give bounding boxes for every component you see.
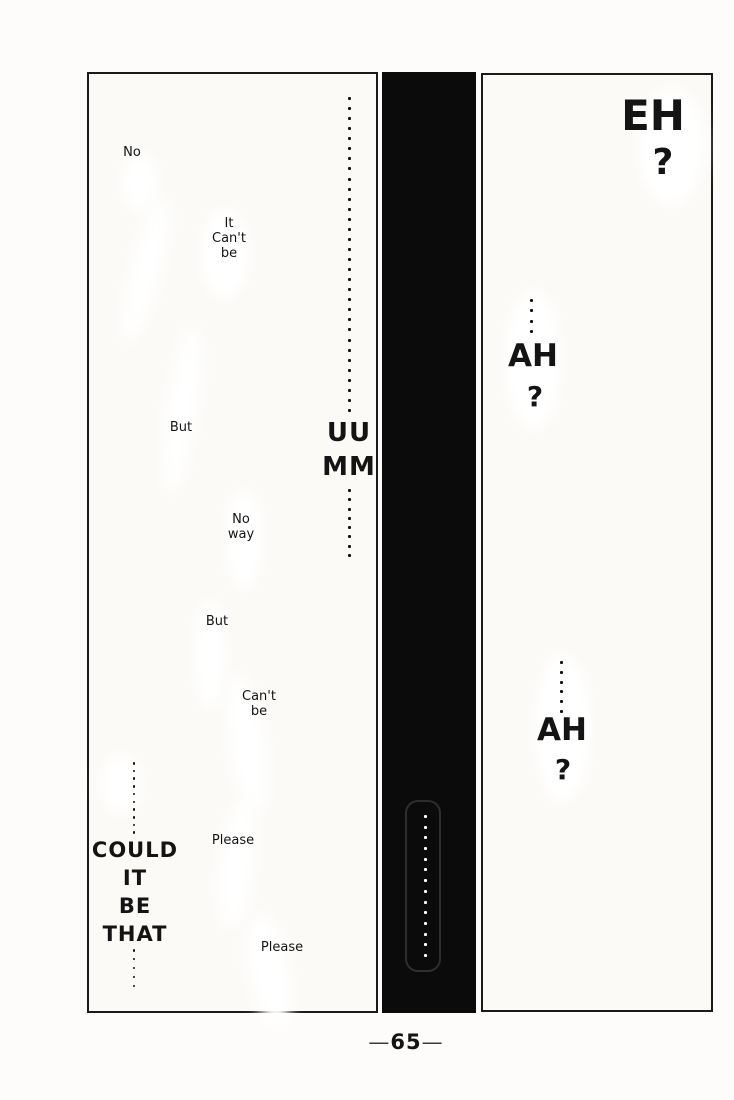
dialogue-no: No — [107, 146, 157, 161]
black-gutter-bar — [382, 72, 476, 1013]
dialogue-no-text: No — [123, 145, 141, 160]
dialogue-but-1: But — [151, 421, 211, 436]
ellipsis-dots-below-that — [132, 949, 136, 987]
sfx-ah-2: AH — [527, 715, 597, 746]
white-halo — [155, 323, 208, 496]
sfx-ah-2-question-mark: ? — [541, 756, 585, 784]
dialogue-but-2: But — [187, 615, 247, 630]
white-halo — [239, 911, 298, 1031]
page-number: —65— — [336, 1030, 476, 1054]
ellipsis-dots-top-column — [347, 97, 351, 412]
sfx-ah-1-question-mark: ? — [513, 383, 557, 411]
white-halo — [212, 797, 261, 930]
manga-page: { "left_panel": { "no": "No", "it_cant_b… — [0, 0, 734, 1100]
sfx-eh: EH — [613, 95, 693, 137]
dialogue-please-1: Please — [203, 834, 263, 849]
ellipsis-dots-above-ah-1 — [529, 299, 533, 333]
ellipsis-dots-above-ah-2 — [559, 661, 563, 713]
ellipsis-dots-above-could — [132, 762, 136, 834]
page-number-dash-right: — — [422, 1030, 444, 1054]
page-number-value: 65 — [390, 1030, 421, 1054]
dialogue-cant-be: Can't be — [229, 690, 289, 720]
ellipsis-dots-gutter-bubble — [423, 815, 427, 957]
white-halo — [122, 152, 158, 212]
dialogue-no-way: No way — [211, 513, 271, 543]
sfx-uumm: UU MM — [317, 416, 381, 484]
left-panel: No It Can't be But UU MM No way But Can'… — [87, 72, 378, 1013]
sfx-could-it-be-that: COULD IT BE THAT — [89, 836, 181, 948]
sfx-eh-question-mark: ? — [643, 145, 683, 181]
white-halo — [113, 193, 178, 346]
dialogue-it-cant-be: It Can't be — [199, 217, 259, 262]
page-number-dash-left: — — [368, 1030, 390, 1054]
ellipsis-dots-below-uumm — [347, 489, 351, 557]
sfx-ah-1: AH — [498, 341, 568, 372]
right-panel: EH ? AH ? AH ? — [481, 73, 713, 1012]
dialogue-please-2: Please — [252, 941, 312, 956]
